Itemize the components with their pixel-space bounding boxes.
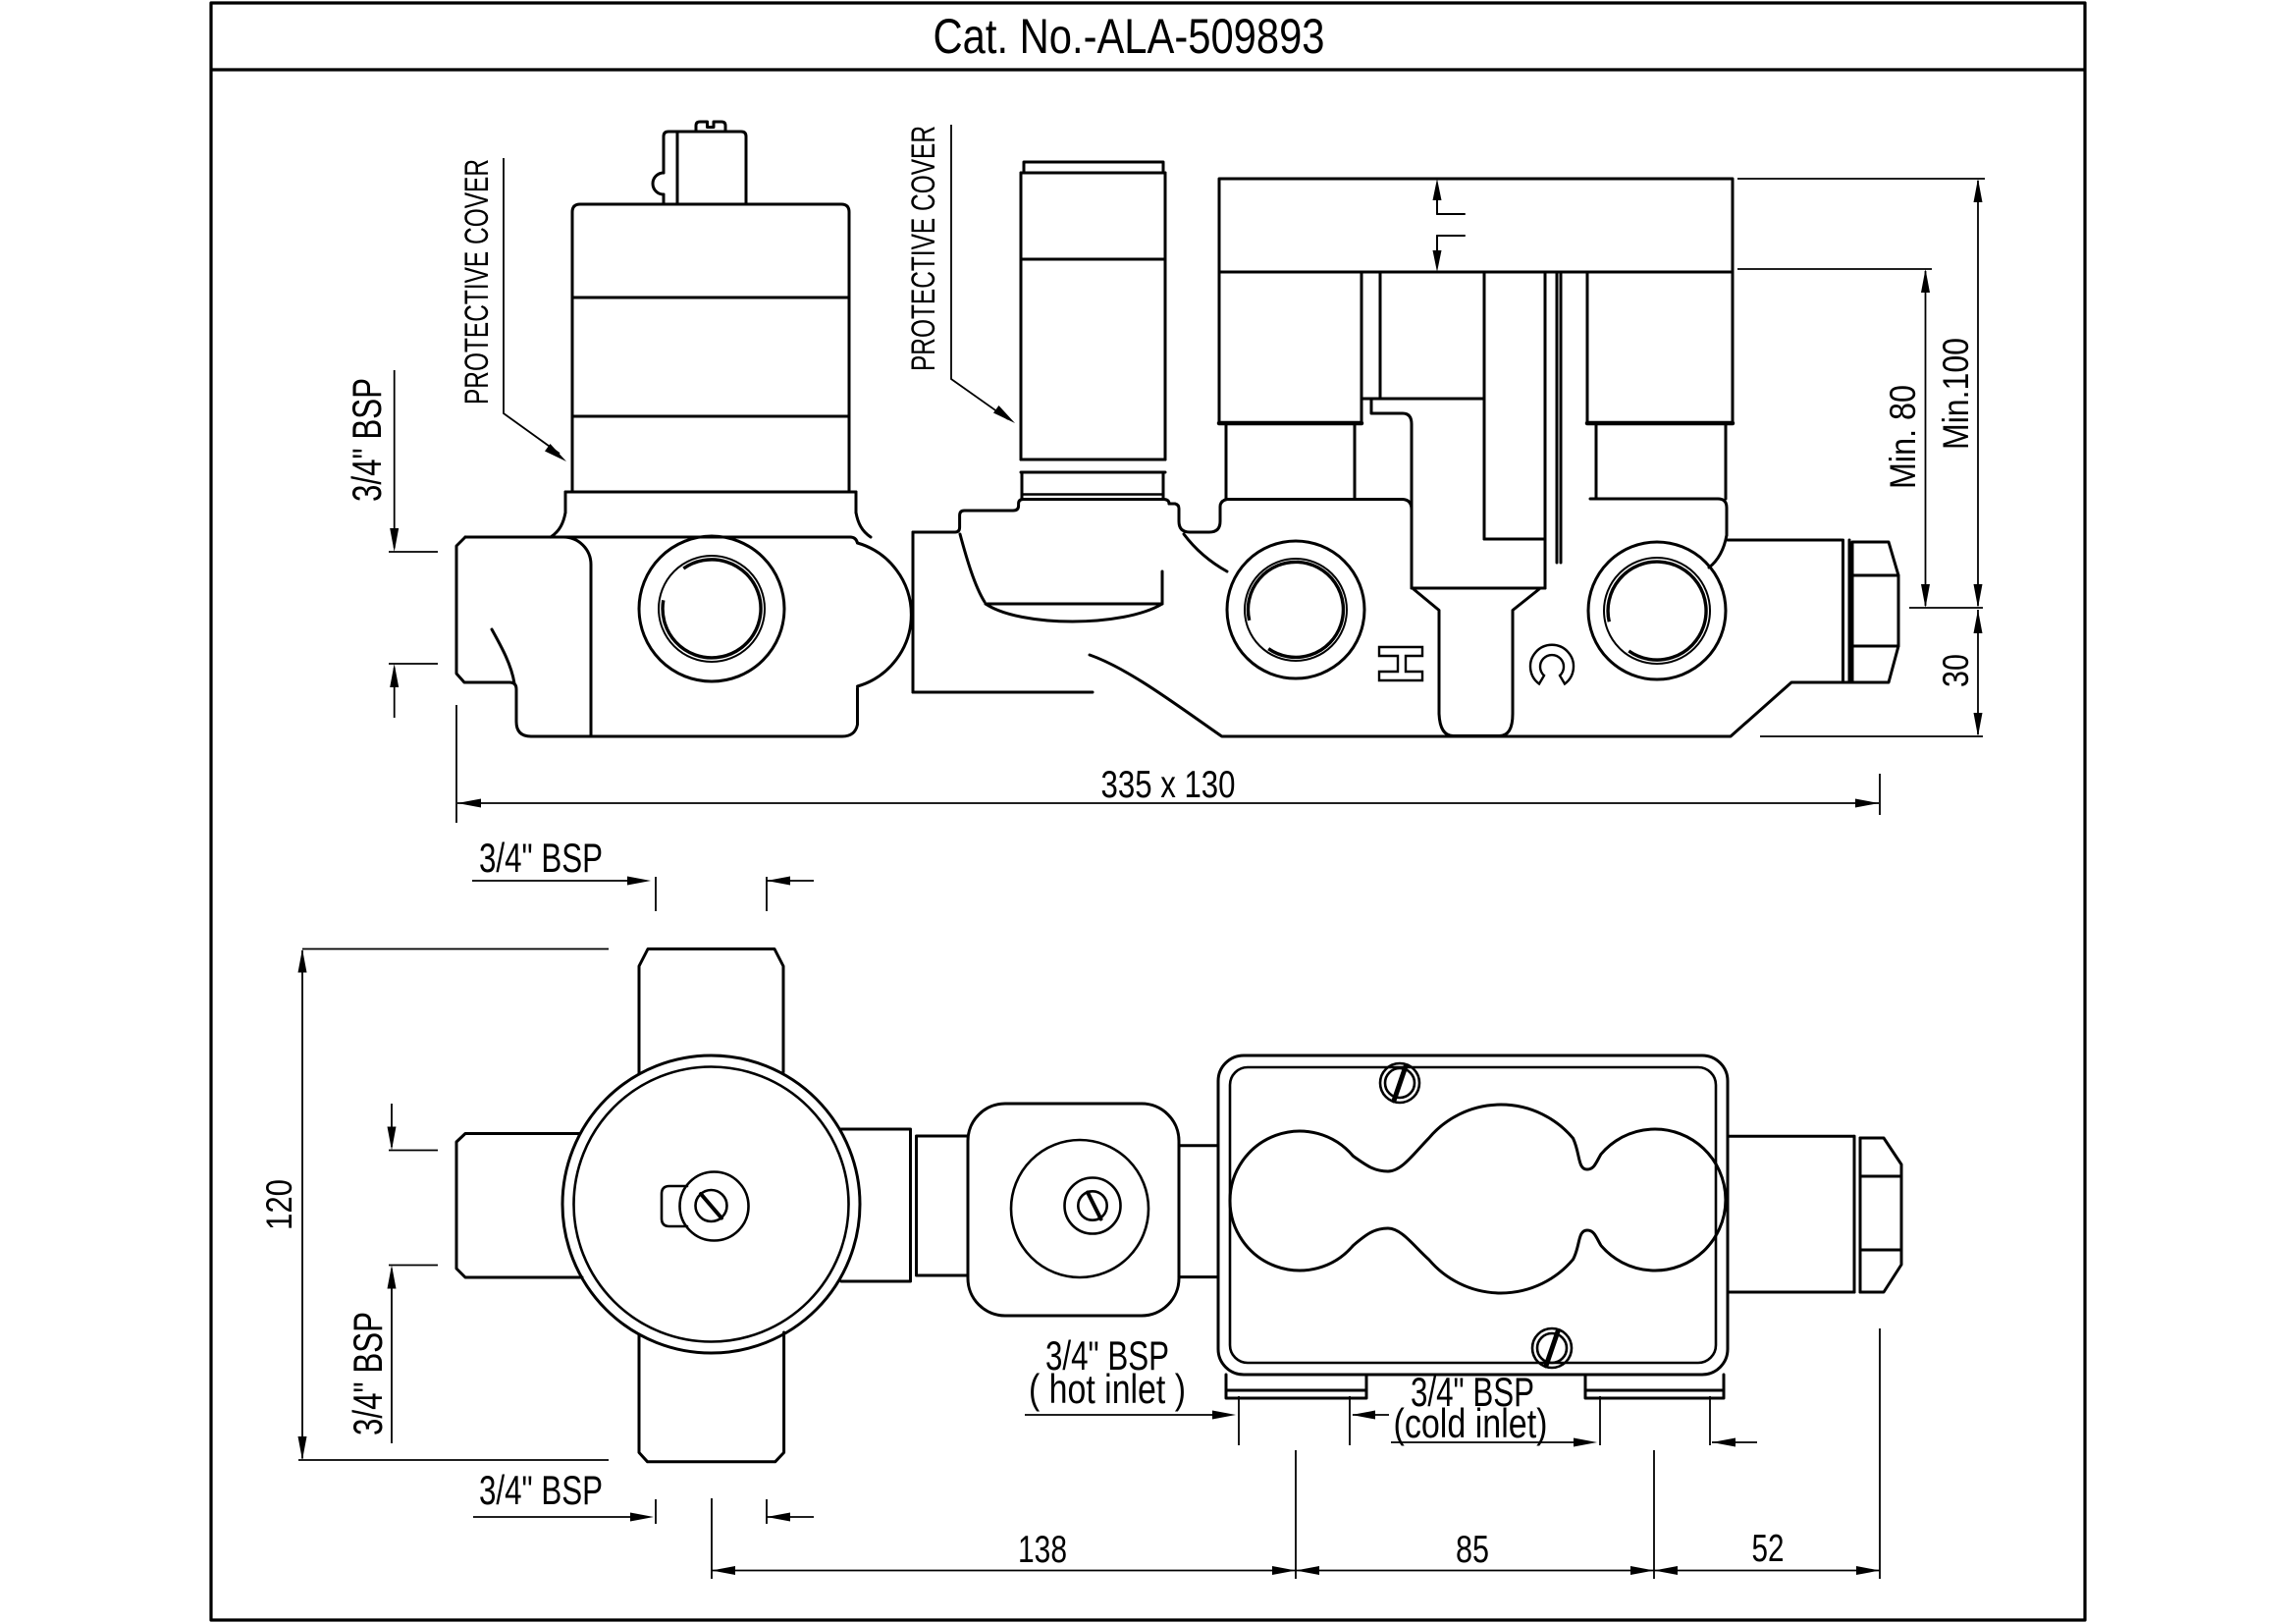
svg-text:( hot inlet ): ( hot inlet ) [1029,1366,1186,1412]
svg-text:3/4" BSP: 3/4" BSP [479,835,603,881]
svg-text:30: 30 [1936,654,1976,687]
svg-text:85: 85 [1456,1529,1489,1571]
svg-text:3/4" BSP: 3/4" BSP [479,1467,603,1513]
svg-text:3/4" BSP: 3/4" BSP [344,378,390,502]
svg-text:PROTECTIVE COVER: PROTECTIVE COVER [905,126,942,371]
svg-text:138: 138 [1018,1529,1067,1571]
svg-text:Min.100: Min.100 [1936,338,1976,450]
svg-text:Min. 80: Min. 80 [1883,385,1923,489]
svg-text:120: 120 [259,1179,299,1230]
svg-text:335 x 130: 335 x 130 [1101,764,1236,806]
svg-text:52: 52 [1752,1528,1785,1570]
svg-text:3/4" BSP: 3/4" BSP [345,1312,391,1435]
svg-text:(cold inlet): (cold inlet) [1394,1400,1548,1446]
svg-text:Cat. No.-ALA-509893: Cat. No.-ALA-509893 [934,9,1325,64]
svg-text:PROTECTIVE COVER: PROTECTIVE COVER [458,159,496,405]
